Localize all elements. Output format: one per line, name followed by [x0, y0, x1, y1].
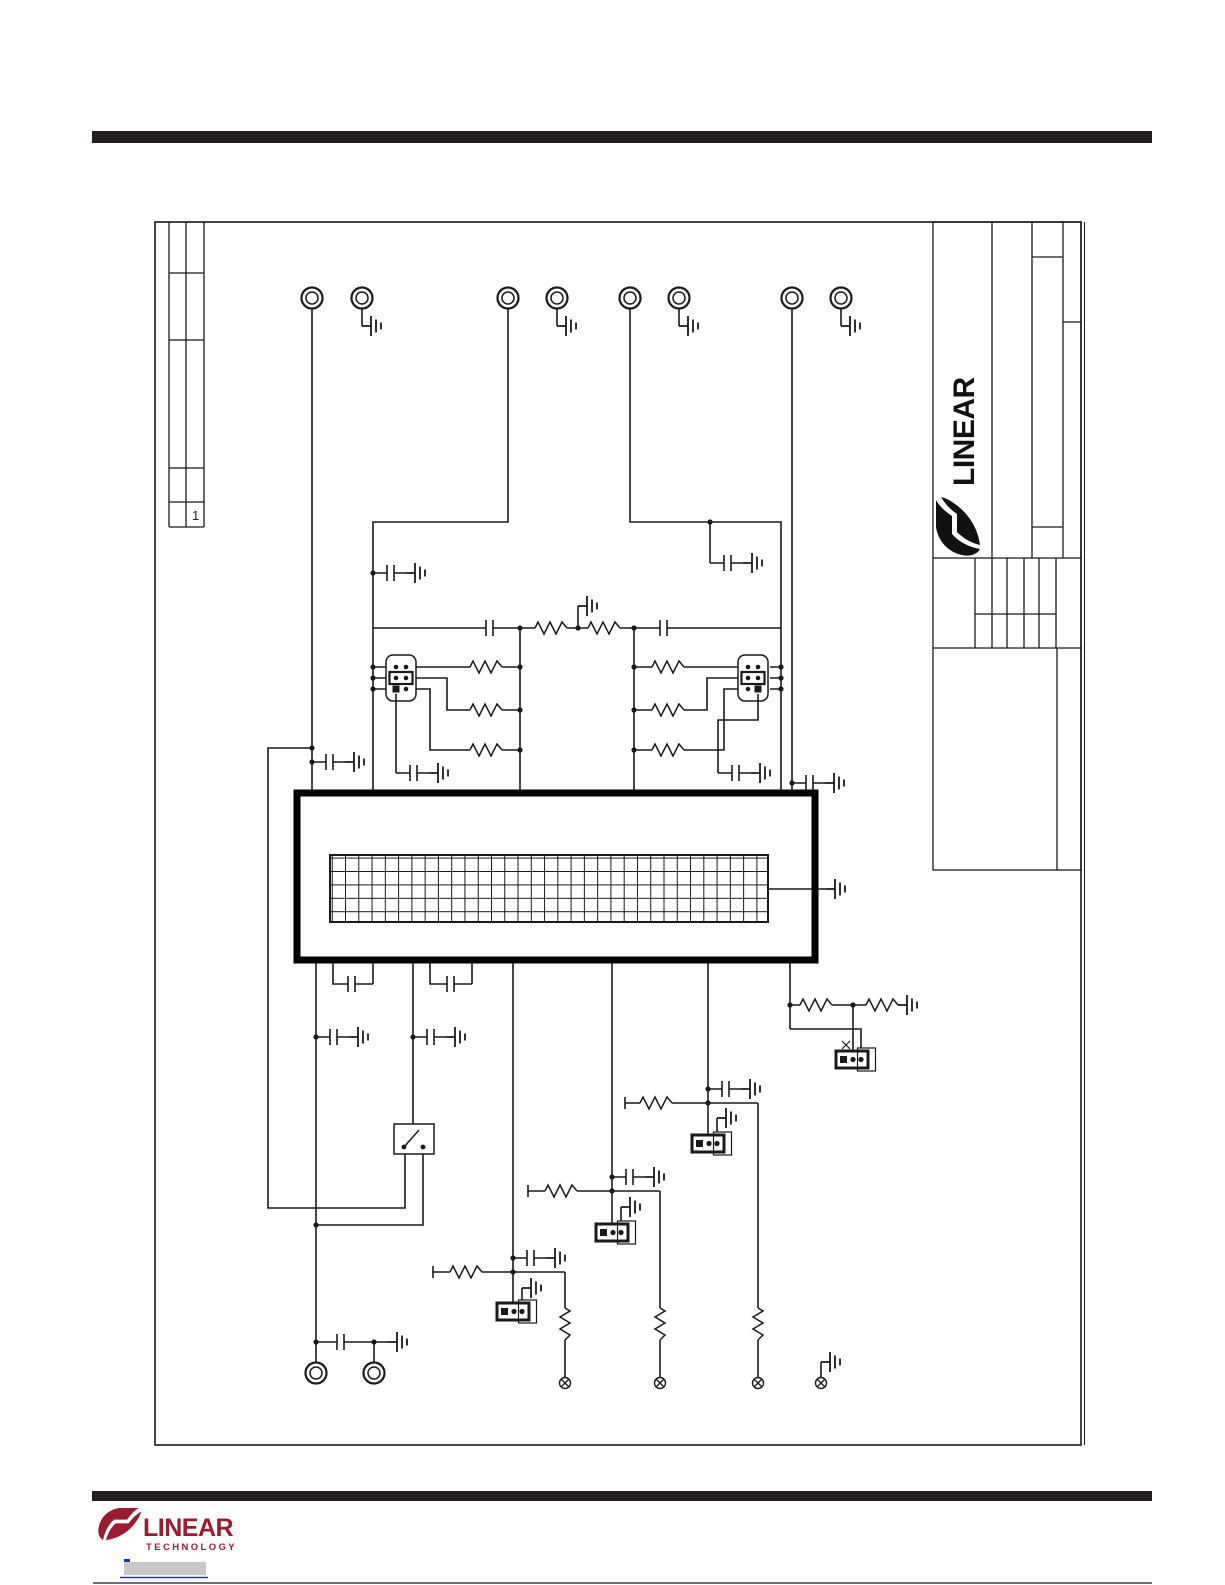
resistor-icon — [560, 1308, 570, 1340]
lt-logo-icon — [936, 497, 980, 556]
footer-brand-subtext: TECHNOLOGY — [146, 1542, 237, 1553]
ground-icon — [388, 1332, 407, 1352]
capacitor-icon — [513, 1248, 565, 1268]
resistor-icon — [652, 661, 684, 673]
ground-icon — [821, 1352, 840, 1372]
shunt-jumper-icon — [596, 1221, 636, 1244]
resistor-icon — [470, 704, 502, 716]
resistor-group — [450, 622, 898, 1340]
turret-connector — [669, 288, 690, 309]
capacitor-icon — [612, 1167, 664, 1187]
resistor-icon — [535, 622, 567, 634]
capacitor-icon — [413, 1027, 465, 1047]
turret-connector — [547, 288, 568, 309]
spdt-switch — [394, 1124, 434, 1154]
jumper-3pin-group — [497, 1041, 876, 1323]
test-point-icon — [560, 1378, 571, 1389]
schematic-sheet: 1 LINEAR — [0, 0, 1225, 1585]
resistor-icon — [866, 999, 898, 1011]
bga-grid — [330, 855, 768, 922]
pin1-marker — [755, 686, 762, 693]
capacitor-icon — [312, 752, 364, 772]
ground-icon — [841, 316, 860, 336]
schematic-wires — [268, 309, 866, 1377]
resistor-icon — [450, 1266, 482, 1278]
resistor-icon — [588, 622, 620, 634]
jumper-header-icon — [738, 655, 768, 701]
footer-brand-text: LINEAR — [143, 1514, 234, 1542]
revision-strip-left — [169, 222, 204, 527]
capacitor-icon — [718, 763, 770, 783]
resistor-icon — [753, 1308, 763, 1340]
capacitor-icon — [660, 620, 667, 636]
test-point-icon — [655, 1378, 666, 1389]
resistor-icon — [640, 1097, 672, 1109]
turret-connector — [352, 288, 373, 309]
footer-brand-logo: LINEAR TECHNOLOGY — [98, 1508, 237, 1553]
shunt-jumper-icon — [836, 1048, 876, 1071]
ground-icon — [679, 316, 698, 336]
lt-logo-icon — [98, 1508, 141, 1540]
junction-dots — [309, 519, 855, 1344]
shunt-jumper-icon — [497, 1300, 537, 1323]
datasheet-page: 1 LINEAR — [0, 0, 1225, 1585]
turret-connector — [498, 288, 519, 309]
capacitor-icon — [447, 976, 454, 992]
resistor-icon — [652, 744, 684, 756]
turret-connector — [364, 1363, 385, 1384]
test-points — [560, 1378, 827, 1389]
capacitor-icon — [337, 1334, 344, 1350]
resistor-icon — [545, 1185, 577, 1197]
footer-link-box[interactable] — [124, 1562, 206, 1575]
shunt-jumper-icon — [692, 1132, 732, 1155]
ground-icon — [621, 1197, 640, 1217]
no-connect-x-icon — [842, 1041, 850, 1049]
resistor-icon — [655, 1308, 665, 1340]
ground-icon — [826, 879, 845, 899]
bga-ic — [297, 793, 815, 960]
capacitor-icon — [348, 976, 355, 992]
bottom-rule — [92, 1491, 1152, 1501]
turret-connector — [782, 288, 803, 309]
turret-connector — [620, 288, 641, 309]
ground-group — [362, 316, 917, 1372]
footer-link[interactable] — [120, 1559, 208, 1578]
turret-connectors — [302, 288, 852, 1384]
capacitor-icon — [316, 1027, 368, 1047]
pin1-marker — [393, 686, 400, 693]
capacitor-icon — [710, 553, 762, 573]
capacitor-icon — [396, 763, 448, 783]
revision-sheet-number: 1 — [192, 508, 199, 523]
ground-icon — [898, 995, 917, 1015]
capacitor-icon — [486, 620, 493, 636]
test-point-icon — [816, 1378, 827, 1389]
resistor-icon — [470, 661, 502, 673]
turret-connector — [302, 288, 323, 309]
test-point-icon — [753, 1378, 764, 1389]
titleblock-brand-text: LINEAR — [948, 377, 981, 487]
ground-icon — [717, 1108, 736, 1128]
ground-icon — [557, 316, 576, 336]
capacitor-icon — [373, 563, 425, 583]
link-caret-icon — [124, 1559, 130, 1562]
ground-icon — [522, 1278, 541, 1298]
resistor-icon — [652, 704, 684, 716]
jumper-header-icon — [386, 655, 416, 701]
resistor-icon — [800, 999, 832, 1011]
turret-connector — [831, 288, 852, 309]
capacitor-icon — [708, 1079, 760, 1099]
resistor-icon — [470, 744, 502, 756]
turret-connector — [306, 1363, 327, 1384]
ground-icon — [362, 316, 381, 336]
titleblock-brand-logo: LINEAR — [936, 377, 981, 556]
ground-icon — [578, 596, 597, 616]
top-rule — [92, 131, 1152, 143]
